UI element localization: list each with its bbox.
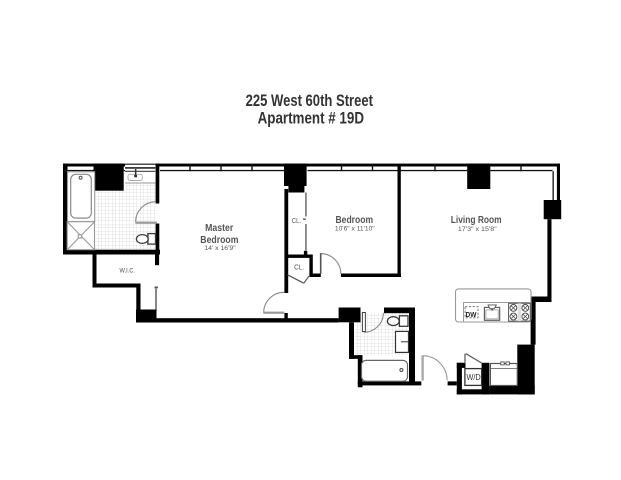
svg-text:Apartment # 19D: Apartment # 19D [258,109,364,128]
svg-text:14' x 16'9": 14' x 16'9" [204,245,235,252]
svg-text:W/D: W/D [466,373,481,382]
svg-text:10'6" x 11'10": 10'6" x 11'10" [335,226,375,233]
svg-text:Master: Master [205,223,233,234]
svg-text:Living Room: Living Room [451,215,502,226]
svg-text:DW: DW [466,310,478,319]
svg-text:CL.: CL. [294,264,304,271]
svg-text:17'3" x 15'8": 17'3" x 15'8" [458,226,497,233]
svg-text:225 West 60th Street: 225 West 60th Street [246,91,374,110]
svg-text:W.I.C.: W.I.C. [119,268,135,275]
svg-text:CL.: CL. [292,218,301,225]
